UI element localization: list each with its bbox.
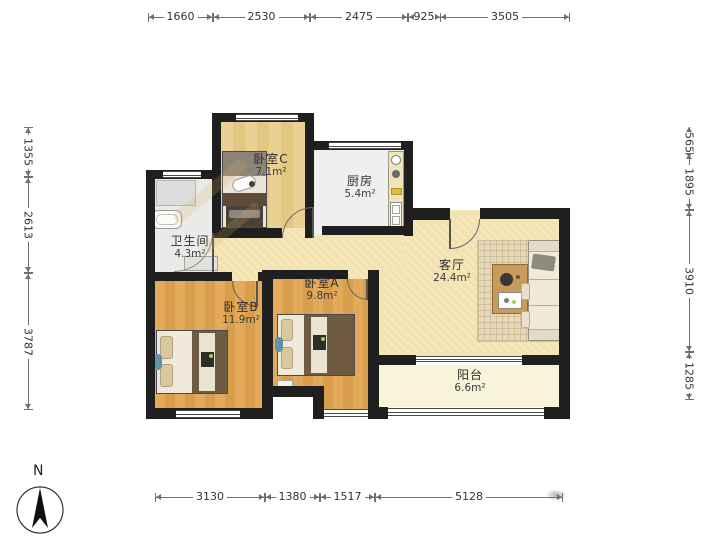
wall bbox=[322, 226, 404, 235]
wall bbox=[404, 141, 413, 236]
sofa-throw bbox=[531, 253, 556, 271]
dimension-value: 3130 bbox=[193, 490, 227, 504]
dimension-value: 2530 bbox=[245, 10, 279, 24]
wall bbox=[368, 407, 388, 419]
dimension-left-2: 2613 bbox=[21, 177, 35, 273]
dimension-value: 2613 bbox=[22, 208, 35, 242]
stove-burner-icon bbox=[392, 170, 400, 178]
dimension-top-4: 925 bbox=[408, 10, 440, 24]
wall bbox=[313, 386, 324, 419]
bed-a-pillow-1 bbox=[281, 319, 293, 341]
counter-box bbox=[391, 188, 402, 195]
kettle-icon bbox=[500, 273, 513, 286]
dimension-left-3: 3787 bbox=[21, 273, 35, 410]
dimension-value: 1660 bbox=[164, 10, 198, 24]
balcony-sliding-window bbox=[416, 356, 522, 362]
dimension-bottom-1: 3130 bbox=[155, 490, 265, 504]
bed-c-blanket bbox=[223, 193, 266, 206]
bedroom-a-door-leaf bbox=[366, 279, 368, 300]
wall bbox=[522, 355, 564, 365]
dimension-right-3: 3910 bbox=[682, 210, 696, 352]
dimension-value: 3787 bbox=[22, 325, 35, 359]
bathroom-window bbox=[163, 171, 201, 178]
bed-a bbox=[277, 314, 355, 376]
balcony-floor bbox=[379, 365, 560, 407]
wall bbox=[544, 407, 570, 419]
sofa-armrest-top bbox=[529, 241, 560, 252]
dimension-value: 565 bbox=[683, 129, 696, 156]
dimension-value: 3505 bbox=[488, 10, 522, 24]
wall bbox=[368, 355, 416, 365]
bedroom-a-window bbox=[324, 409, 368, 417]
tray-icon bbox=[498, 292, 522, 309]
dimension-right-2: 1895 bbox=[682, 153, 696, 210]
dimension-value: 1285 bbox=[683, 359, 696, 393]
tray-dot-1 bbox=[504, 298, 509, 303]
dimension-top-3: 2475 bbox=[310, 10, 408, 24]
kitchen-window bbox=[329, 142, 401, 149]
north-label: N bbox=[33, 463, 43, 479]
sink-basin-1 bbox=[392, 205, 400, 214]
bed-c-pillow-dot bbox=[249, 181, 255, 187]
floor-plan: 卧室C 7.1m² 厨房 5.4m² 卫生间 4.3m² 卧室B 11.9m² … bbox=[0, 0, 720, 540]
bedroom-c-window bbox=[236, 114, 298, 121]
wall bbox=[212, 113, 221, 233]
dimension-right-4: 1285 bbox=[682, 352, 696, 400]
bedroom-b-window bbox=[176, 410, 240, 418]
dimension-value: 1895 bbox=[683, 165, 696, 199]
wall bbox=[146, 272, 232, 281]
wall bbox=[559, 208, 570, 419]
tray-dot-2 bbox=[512, 300, 516, 304]
dimension-value: 1355 bbox=[22, 135, 35, 169]
bed-a-box-dot bbox=[321, 337, 325, 341]
wall bbox=[404, 208, 450, 220]
bed-b-box-dot bbox=[209, 354, 213, 358]
sofa-cushion-side-2 bbox=[521, 311, 530, 328]
exterior-notch bbox=[273, 397, 314, 418]
dimension-bottom-4: 5128 bbox=[375, 490, 563, 504]
dimension-value: 2475 bbox=[342, 10, 376, 24]
sofa-cushion-side-1 bbox=[521, 283, 530, 300]
wall bbox=[146, 170, 155, 419]
bed-b-accent bbox=[154, 354, 162, 370]
wall bbox=[262, 270, 348, 279]
cup-icon bbox=[516, 275, 520, 279]
bed-b-pillow-2 bbox=[160, 364, 173, 387]
bed-a-pillow-2 bbox=[281, 347, 293, 369]
dimension-value: 925 bbox=[411, 10, 438, 24]
bed-b bbox=[156, 330, 228, 394]
kitchen-clock-icon bbox=[391, 155, 401, 165]
dimension-top-1: 1660 bbox=[148, 10, 213, 24]
dimension-value: 5128 bbox=[452, 490, 486, 504]
entry-door-leaf bbox=[449, 219, 451, 249]
sofa-seam-2 bbox=[529, 305, 560, 306]
dimension-top-2: 2530 bbox=[213, 10, 310, 24]
dimension-value: 1517 bbox=[331, 490, 365, 504]
sink-basin-2 bbox=[392, 216, 400, 225]
sofa-seam-1 bbox=[529, 279, 560, 280]
bedroom-b-door-leaf bbox=[256, 281, 258, 307]
dimension-right-1: 565 bbox=[682, 127, 696, 153]
compass-icon bbox=[14, 484, 66, 536]
balcony-window bbox=[388, 408, 544, 416]
bedroom-c-door-leaf bbox=[312, 207, 314, 238]
wall bbox=[368, 270, 379, 419]
sofa bbox=[528, 240, 561, 341]
dimension-left-1: 1355 bbox=[21, 127, 35, 177]
bed-a-accent bbox=[275, 337, 283, 352]
dimension-bottom-2: 1380 bbox=[265, 490, 320, 504]
dimension-bottom-3: 1517 bbox=[320, 490, 375, 504]
dimension-value: 1380 bbox=[276, 490, 310, 504]
bed-b-pillow-1 bbox=[160, 336, 173, 359]
smudge-artifact bbox=[546, 489, 566, 501]
wall bbox=[480, 208, 568, 219]
dimension-top-5: 3505 bbox=[440, 10, 570, 24]
sofa-armrest-bottom bbox=[529, 329, 560, 340]
kitchen-counter bbox=[388, 151, 404, 233]
dimension-value: 3910 bbox=[683, 264, 696, 298]
kitchen-sink bbox=[390, 202, 402, 228]
